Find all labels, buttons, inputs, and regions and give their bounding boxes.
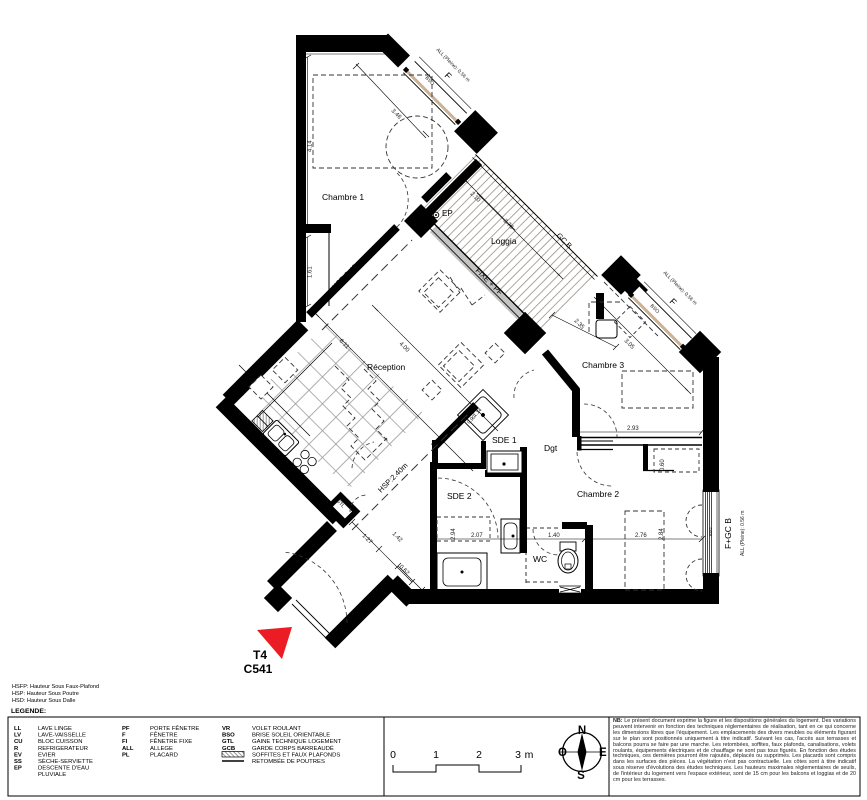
svg-text:2.76: 2.76 [635,533,647,539]
svg-text:EP: EP [442,209,453,218]
svg-text:GTL: GTL [222,739,234,745]
svg-text:BSO: BSO [708,528,713,536]
svg-text:3.46: 3.46 [390,108,403,121]
svg-text:PLACARD: PLACARD [150,752,178,758]
svg-text:BRISE SOLEIL ORIENTABLE: BRISE SOLEIL ORIENTABLE [252,733,330,739]
svg-text:FI: FI [122,739,128,745]
svg-text:LL: LL [14,726,22,732]
svg-text:SDE 2: SDE 2 [447,491,472,501]
svg-text:3.05: 3.05 [623,338,636,351]
svg-text:SDE 1: SDE 1 [492,435,517,445]
svg-text:E: E [599,747,607,759]
svg-text:HSFP: Hauteur Sous Faux-Plafon: HSFP: Hauteur Sous Faux-Plafond [12,684,99,690]
svg-text:3: 3 [515,749,521,761]
svg-text:Loggia: Loggia [491,236,517,246]
svg-text:LAVE-VAISSELLE: LAVE-VAISSELLE [38,733,86,739]
svg-text:O: O [558,747,567,759]
svg-text:VR: VR [222,726,231,732]
svg-text:PLUVIALE: PLUVIALE [38,772,66,778]
svg-text:2: 2 [476,749,482,761]
svg-text:m: m [525,749,534,761]
svg-text:HSP:2.40m: HSP:2.40m [330,258,363,291]
svg-text:R: R [14,746,19,752]
svg-text:Chambre 3: Chambre 3 [582,360,624,370]
svg-text:Chambre 1: Chambre 1 [322,192,364,202]
svg-text:PL: PL [122,752,130,758]
svg-text:N: N [578,725,586,737]
svg-text:LAVE LINGE: LAVE LINGE [38,726,72,732]
svg-text:Réception: Réception [367,362,406,372]
svg-text:EV: EV [14,752,22,758]
svg-text:4.14: 4.14 [308,140,314,152]
svg-text:Dgt: Dgt [544,443,558,453]
svg-text:1.42: 1.42 [391,531,404,544]
svg-text:S: S [577,770,585,782]
svg-text:PORTE FÊNETRE: PORTE FÊNETRE [150,724,199,732]
svg-text:F: F [668,296,679,307]
svg-text:VOLET ROULANT: VOLET ROULANT [252,726,301,732]
svg-text:1.40: 1.40 [548,533,560,539]
svg-text:2.35: 2.35 [573,318,586,331]
svg-text:BSO: BSO [222,733,235,739]
svg-text:ALLEGE: ALLEGE [150,746,173,752]
svg-text:2.84: 2.84 [659,528,665,540]
svg-text:ALL (Pleine): 0.56 m: ALL (Pleine): 0.56 m [740,511,746,556]
svg-text:GARDE CORPS BARREAUDÉ: GARDE CORPS BARREAUDÉ [252,745,334,752]
svg-text:ALL: ALL [122,746,134,752]
svg-text:GCB: GCB [222,746,235,752]
svg-text:BLOC CUISSON: BLOC CUISSON [38,739,83,745]
svg-text:LV: LV [14,733,21,739]
svg-text:F+GC B: F+GC B [723,518,733,549]
svg-text:2.93: 2.93 [627,426,639,432]
svg-text:0.60: 0.60 [660,459,666,471]
svg-text:T4: T4 [253,648,267,662]
svg-text:FÊNETRE FIXE: FÊNETRE FIXE [150,737,192,745]
svg-text:FÊNETRE: FÊNETRE [150,731,178,739]
svg-text:SÈCHE-SERVIETTE: SÈCHE-SERVIETTE [38,758,93,765]
svg-text:REFRIGERATEUR: REFRIGERATEUR [38,746,88,752]
svg-text:HSD: Hauteur Sous Dalle: HSD: Hauteur Sous Dalle [12,698,75,704]
svg-text:2.07: 2.07 [471,533,483,539]
svg-text:GAINE TECHNIQUE LOGEMENT: GAINE TECHNIQUE LOGEMENT [252,739,342,745]
svg-text:2.94: 2.94 [451,528,457,540]
svg-text:LEGENDE:: LEGENDE: [11,708,46,715]
svg-text:F: F [443,70,454,81]
svg-text:EP: EP [14,766,22,772]
svg-text:0.62: 0.62 [398,564,411,577]
svg-text:1.61: 1.61 [308,266,314,278]
svg-text:C541: C541 [244,662,273,676]
svg-text:HSP: Hauteur Sous Poutre: HSP: Hauteur Sous Poutre [12,691,79,697]
svg-text:RETOMBÉE DE POUTRES: RETOMBÉE DE POUTRES [252,758,325,765]
svg-text:EVIER: EVIER [38,752,56,758]
svg-text:CU: CU [14,739,23,745]
svg-text:ALL (Pleine): 0.56 m: ALL (Pleine): 0.56 m [435,47,471,83]
svg-text:Chambre 2: Chambre 2 [577,489,619,499]
svg-text:F: F [122,733,126,739]
svg-text:4.00: 4.00 [398,341,411,354]
svg-text:1: 1 [433,749,439,761]
svg-text:0: 0 [390,749,396,761]
svg-text:ALL (Pleine): 0.56 m: ALL (Pleine): 0.56 m [662,270,698,306]
svg-text:SOFFITES ET FAUX PLAFONDS: SOFFITES ET FAUX PLAFONDS [252,752,340,758]
svg-text:WC: WC [533,554,547,564]
svg-text:1.27: 1.27 [361,533,374,546]
svg-text:DESCENTE D'EAU: DESCENTE D'EAU [38,766,89,772]
svg-text:SS: SS [14,759,22,765]
svg-text:PF: PF [122,726,130,732]
